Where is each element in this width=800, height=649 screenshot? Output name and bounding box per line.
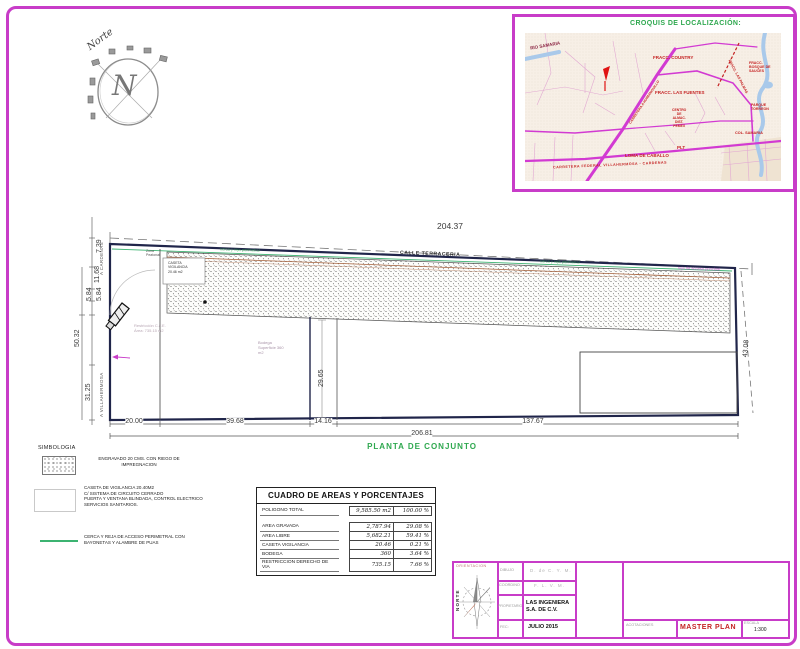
map-label-fuentes: FRACC. LAS FUENTES	[655, 90, 705, 95]
north-letter: N	[112, 68, 137, 103]
tb-row0-label: DIBUJO	[500, 568, 514, 573]
dim-bottom-3: 137.67	[522, 418, 543, 425]
legend-swatch-caseta	[34, 489, 76, 512]
croquis-map: RIO SAMARIA FRACC. COUNTRY FRACC. BOSQUE…	[525, 33, 781, 181]
map-label-parque: PARQUE TORREON	[751, 103, 769, 111]
areas-table-title: CUADRO DE AREAS Y PORCENTAJES	[257, 488, 435, 504]
legend-item2-text: CASETA DE VIGILANCIA 20.40M2 C/ SISTEMA …	[84, 485, 203, 508]
row-value: 9,585.50 m2	[350, 507, 394, 516]
map-label-country: FRACC. COUNTRY	[653, 55, 693, 60]
plan-name: MASTER PLAN	[680, 624, 736, 633]
legend-item1-text: ENGRAVADO 20 CMS. CON RIEGO DE IMPREGNAC…	[84, 456, 194, 467]
tb-row2-value: LAS INGENIERA S.A. DE C.V.	[526, 600, 569, 614]
dim-bottom-1: 39.68	[226, 418, 244, 425]
table-row: AREA GRAVADA 2,787.94 29.08 %	[260, 523, 432, 532]
tb-row1-label: COORDINO	[499, 583, 520, 588]
row-value: 360	[350, 550, 394, 559]
row-percent: 29.08 %	[394, 523, 432, 532]
caseta-label: CASETA VIGILANCIA 20.46 m2	[168, 261, 188, 274]
tb-row3-value: JULIO 2015	[528, 624, 558, 631]
table-row: POLIGONO TOTAL 9,585.50 m2 100.00 %	[260, 507, 432, 516]
dim-left-5: 31.25	[85, 383, 92, 401]
tb-row2-label: PROPIETARIO	[498, 604, 522, 608]
access-arrow-icon	[112, 355, 130, 360]
legend-swatch-gravel	[42, 456, 76, 475]
tb-row3-label: FEC:	[500, 625, 509, 630]
dim-top: 204.37	[434, 221, 466, 231]
acotaciones-label: ACOTACIONES	[626, 623, 653, 628]
dim-left-1: 11.68	[94, 266, 101, 283]
escala-label: ESCALA	[744, 621, 759, 626]
table-row: BODEGA 360 3.64 %	[260, 550, 432, 559]
row-value: 20.46	[350, 541, 394, 550]
dim-left-0: 7.39	[96, 239, 103, 253]
truck-icon	[105, 303, 129, 331]
legend-item3-text: CERCA Y REJA DE ACCESO PERIMETRAL CON BA…	[84, 534, 185, 545]
row-label: AREA LIBRE	[260, 532, 339, 541]
row-value: 2,787.94	[350, 523, 394, 532]
table-row: RESTRICCION DERECHO DE VIA 735.15 7.66 %	[260, 559, 432, 572]
norte-label: NORTE	[455, 589, 461, 611]
site-plan: 204.37 CALLE TERRACERIA cerca y reja per…	[70, 205, 770, 460]
dim-left-2: 5.84	[86, 287, 93, 301]
legend-swatch-fence	[40, 540, 78, 542]
areas-table-grid: POLIGONO TOTAL 9,585.50 m2 100.00 % AREA…	[260, 506, 432, 572]
dim-left-4: 50.32	[74, 329, 81, 347]
legend-title: SIMBOLOGIA	[38, 445, 76, 452]
row-label: POLIGONO TOTAL	[260, 507, 339, 516]
dim-bottom-2: 14.16	[314, 418, 332, 425]
row-percent: 0.21 %	[394, 541, 432, 550]
map-label-col: COL. SAMARIA	[735, 131, 763, 135]
site-plan-drawing	[70, 205, 770, 460]
row-label: BODEGA	[260, 550, 339, 559]
legend: SIMBOLOGIA ENGRAVADO 20 CMS. CON RIEGO D…	[34, 445, 254, 555]
row-value: 5,682.21	[350, 532, 394, 541]
row-percent: 100.00 %	[394, 507, 432, 516]
escala-value: 1:300	[754, 627, 767, 633]
title-block: ORIENTACION NORTE DIBUJO D. de C. Y. M. …	[452, 561, 790, 639]
bodega-label: Bodega Superficie 360 m2	[258, 340, 284, 355]
north-arrow: Norte N	[82, 20, 182, 140]
dim-left-3: 5.84	[96, 287, 103, 301]
dim-bottom-0: 20.00	[125, 418, 143, 425]
row-percent: 59.41 %	[394, 532, 432, 541]
row-label: AREA GRAVADA	[260, 523, 339, 532]
row-value: 735.15	[350, 559, 394, 572]
orientacion-label: ORIENTACION	[456, 564, 487, 568]
tb-row0-value: D. de C. Y. M.	[530, 568, 572, 574]
croquis-title: CROQUIS DE LOCALIZACIÓN:	[630, 20, 741, 29]
table-row: CASETA VIGILANCIA 20.46 0.21 %	[260, 541, 432, 550]
row-percent: 3.64 %	[394, 550, 432, 559]
row-label: CASETA VIGILANCIA	[260, 541, 339, 550]
dim-inner-29: 29.65	[318, 369, 325, 387]
table-row: AREA LIBRE 5,682.21 59.41 %	[260, 532, 432, 541]
restriccion-note: Restricción C.F.E. Área: 735.15 m2	[134, 323, 166, 333]
drawing-sheet: Norte N CROQUIS DE LOCALIZACIÓN:	[0, 0, 800, 649]
plan-title: PLANTA DE CONJUNTO	[367, 442, 477, 452]
areas-table: CUADRO DE AREAS Y PORCENTAJES POLIGONO T…	[256, 487, 436, 576]
map-label-bosques: FRACC. BOSQUE DE SAUCES	[749, 61, 771, 73]
compass-rose-icon	[457, 571, 497, 633]
road-a-villahermosa: A VILLAHERMOSA	[99, 372, 104, 417]
croquis-box: CROQUIS DE LOCALIZACIÓN:	[512, 14, 796, 192]
row-percent: 7.66 %	[394, 559, 432, 572]
dim-total: 206.81	[411, 430, 432, 437]
map-label-centro: CENTRO DE ALMAC. DIST. PEMEX	[672, 109, 686, 129]
map-label-plt: PLT	[677, 145, 685, 150]
map-label-loma: LOMA DE CABALLO	[625, 153, 669, 158]
tb-row1-value: F. L. V. M.	[534, 583, 565, 589]
row-label: RESTRICCION DERECHO DE VIA	[260, 559, 339, 572]
zona-peatonal-label: Zona Peatonal	[146, 249, 160, 258]
